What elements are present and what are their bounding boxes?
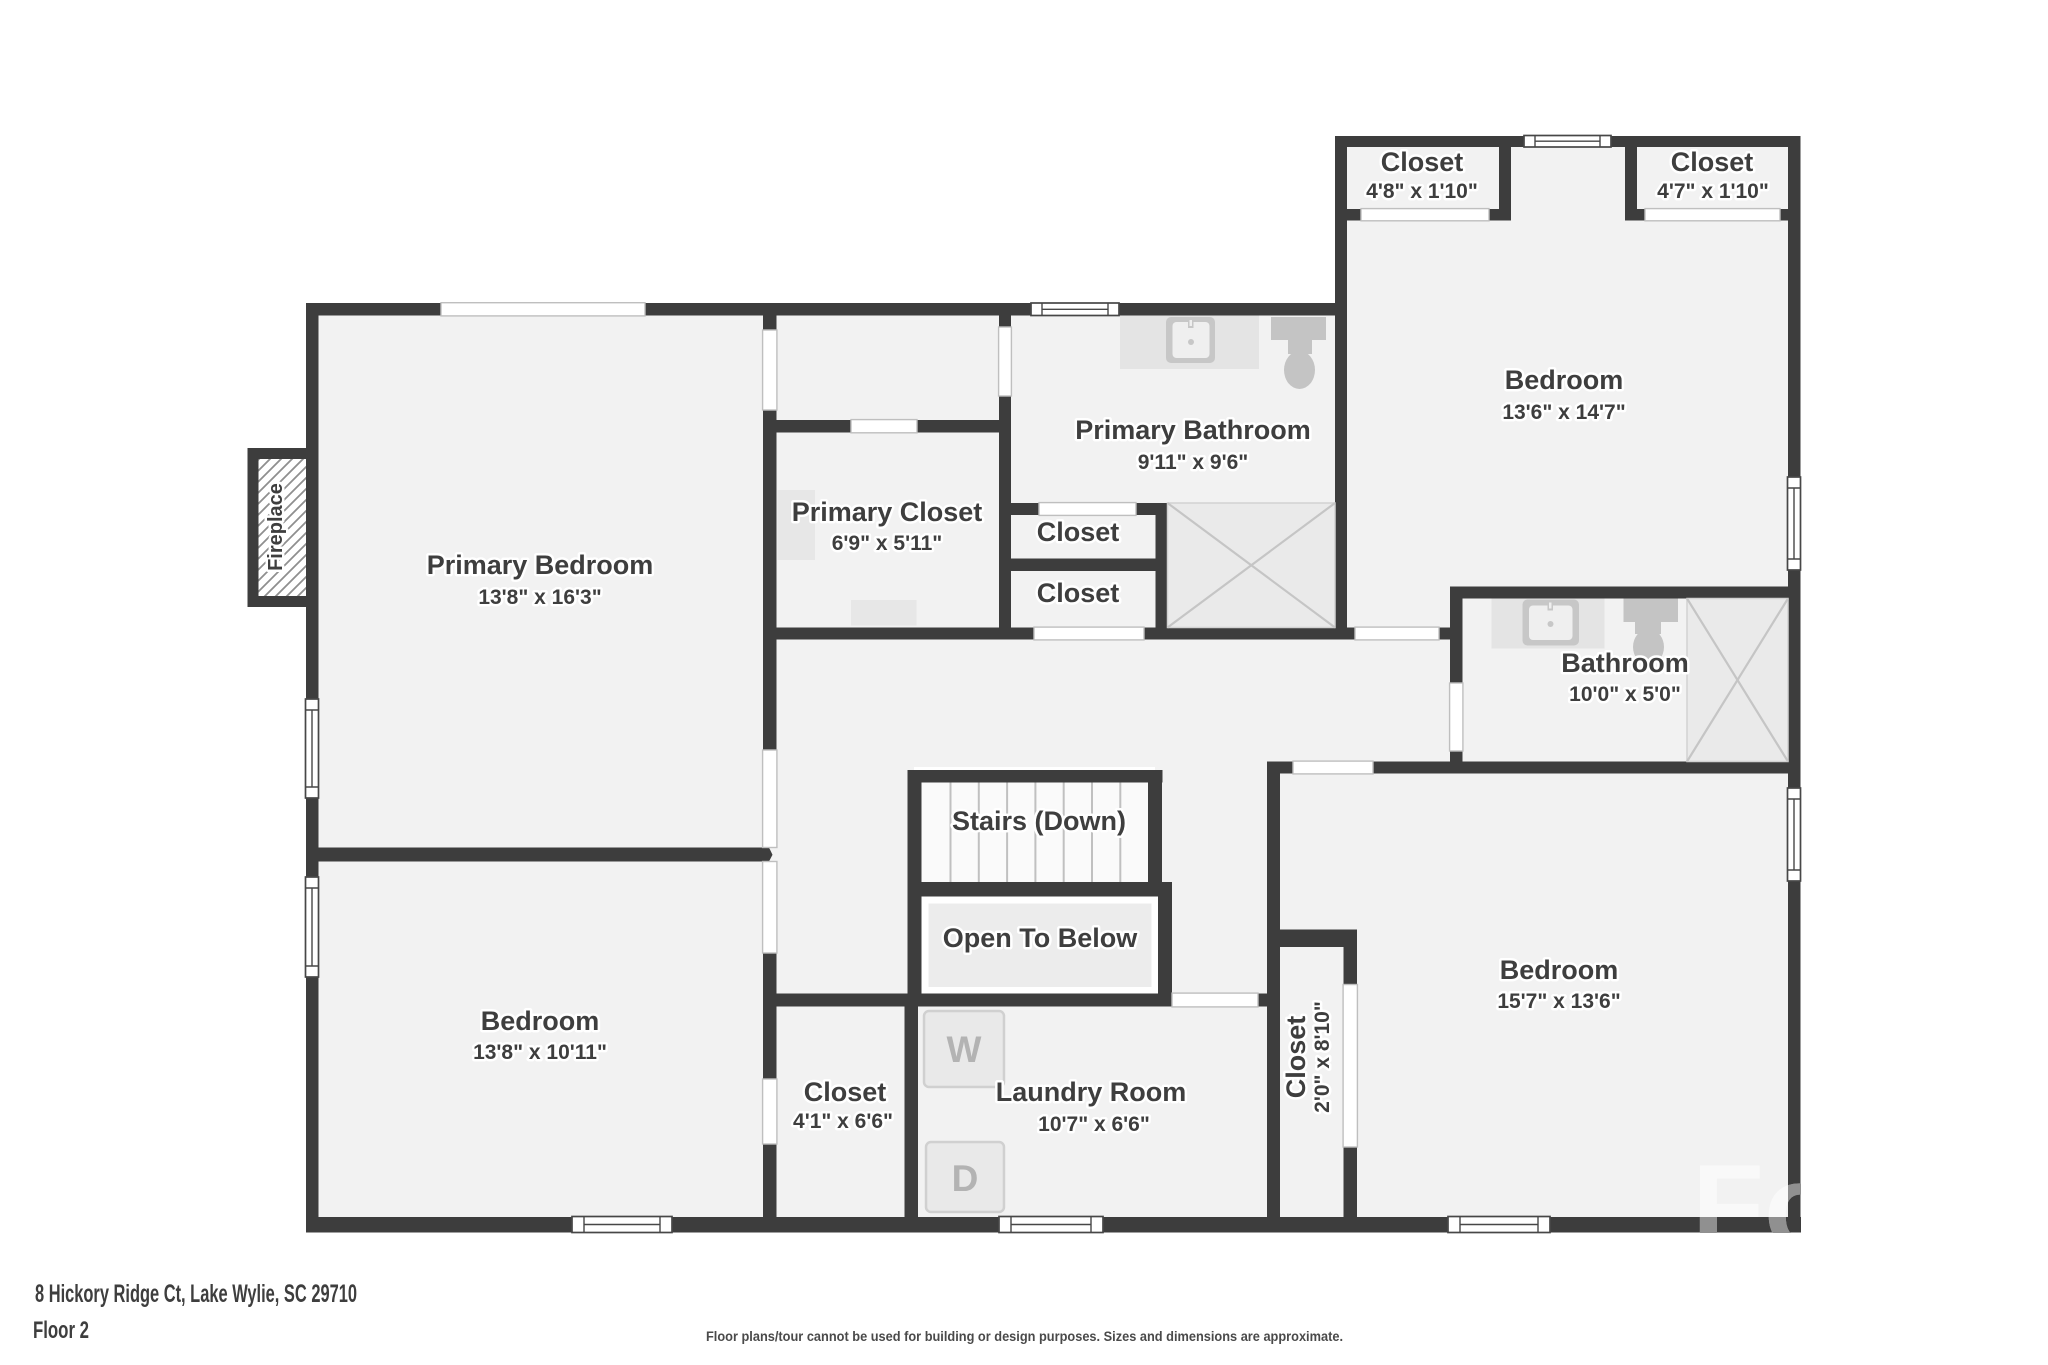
svg-text:W: W (947, 1029, 982, 1070)
svg-text:Fireplace: Fireplace (265, 483, 287, 571)
svg-text:Stairs (Down): Stairs (Down) (952, 806, 1126, 836)
svg-text:13'6" x 14'7": 13'6" x 14'7" (1502, 401, 1625, 424)
svg-text:10'7" x 6'6": 10'7" x 6'6" (1038, 1113, 1150, 1136)
svg-text:Bedroom: Bedroom (1505, 365, 1624, 395)
svg-text:Open To Below: Open To Below (943, 923, 1138, 953)
svg-text:Primary Bathroom: Primary Bathroom (1075, 415, 1311, 445)
svg-text:10'0" x 5'0": 10'0" x 5'0" (1569, 683, 1681, 706)
svg-text:Bathroom: Bathroom (1561, 648, 1689, 678)
svg-text:6'9" x 5'11": 6'9" x 5'11" (832, 532, 943, 555)
svg-text:Primary Closet: Primary Closet (792, 497, 983, 527)
svg-text:13'8" x 16'3": 13'8" x 16'3" (478, 586, 601, 609)
svg-text:Closet: Closet (1381, 147, 1464, 177)
svg-text:4'7" x 1'10": 4'7" x 1'10" (1657, 180, 1769, 203)
svg-text:Laundry Room: Laundry Room (996, 1077, 1187, 1107)
svg-text:Closet: Closet (1671, 147, 1754, 177)
svg-text:2'0" x 8'10": 2'0" x 8'10" (1311, 1001, 1334, 1113)
svg-text:Closet: Closet (1037, 517, 1120, 547)
svg-text:Closet: Closet (1037, 578, 1120, 608)
svg-text:13'8" x 10'11": 13'8" x 10'11" (473, 1041, 607, 1064)
svg-text:4'1" x 6'6": 4'1" x 6'6" (793, 1110, 893, 1133)
svg-text:8 Hickory Ridge Ct, Lake Wylie: 8 Hickory Ridge Ct, Lake Wylie, SC 29710 (35, 1280, 357, 1308)
svg-text:Closet: Closet (1281, 1016, 1311, 1099)
svg-text:4'8" x 1'10": 4'8" x 1'10" (1366, 180, 1478, 203)
svg-text:D: D (952, 1158, 979, 1199)
svg-text:Fo: Fo (1692, 1141, 1836, 1273)
svg-text:9'11" x 9'6": 9'11" x 9'6" (1138, 451, 1249, 474)
svg-text:Floor plans/tour cannot be use: Floor plans/tour cannot be used for buil… (706, 1328, 1343, 1344)
svg-text:Bedroom: Bedroom (1500, 955, 1619, 985)
svg-text:Bedroom: Bedroom (481, 1006, 600, 1036)
svg-text:Closet: Closet (804, 1077, 887, 1107)
svg-text:15'7" x 13'6": 15'7" x 13'6" (1497, 990, 1620, 1013)
svg-text:Floor 2: Floor 2 (33, 1317, 89, 1344)
svg-text:Primary Bedroom: Primary Bedroom (427, 550, 654, 580)
